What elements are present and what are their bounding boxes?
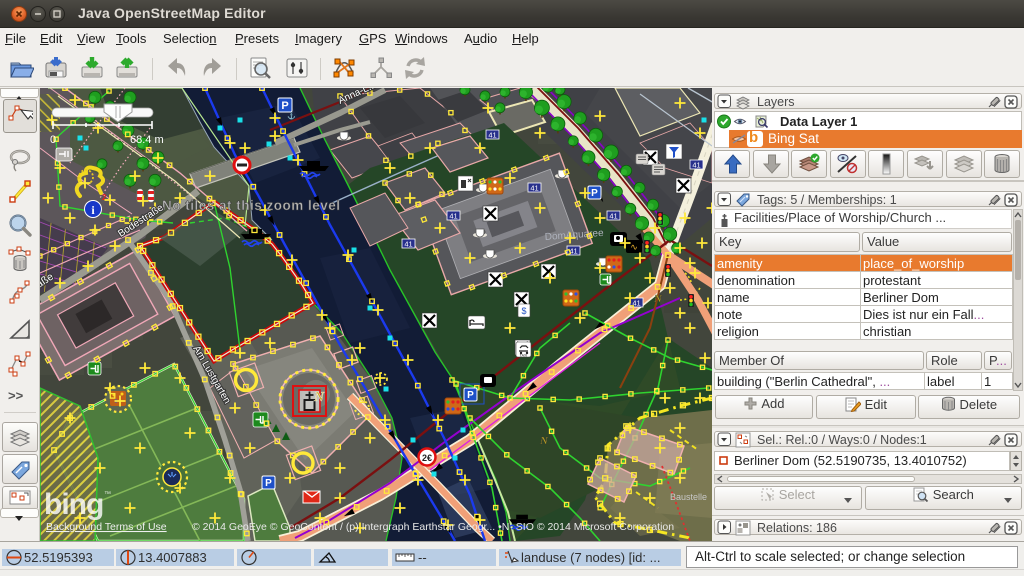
svg-text:41: 41 [488, 131, 496, 140]
svg-text:⚓: ⚓ [287, 111, 296, 120]
svg-text:P: P [281, 100, 288, 112]
svg-text:P: P [467, 390, 474, 401]
svg-text:41: 41 [692, 161, 700, 170]
svg-text:TAXI: TAXI [520, 354, 528, 358]
svg-text:No tiles at this zoom level: No tiles at this zoom level [162, 198, 341, 213]
svg-text:P: P [591, 188, 598, 199]
svg-text:Background Terms of Use: Background Terms of Use [46, 521, 167, 533]
svg-text:™: ™ [104, 491, 111, 498]
svg-text:bing: bing [44, 488, 103, 521]
svg-text:N: N [653, 293, 663, 305]
svg-text:41: 41 [530, 184, 538, 193]
svg-text:$: $ [521, 306, 526, 316]
svg-text:2€: 2€ [422, 453, 432, 463]
svg-text:41: 41 [449, 212, 457, 221]
svg-text:Baustelle: Baustelle [670, 492, 707, 502]
svg-text:41: 41 [404, 240, 412, 249]
svg-text:68.4 m: 68.4 m [130, 134, 164, 146]
svg-text:P: P [265, 478, 272, 489]
svg-text:© 2014 GeoEye © GeoContent / (: © 2014 GeoEye © GeoContent / (p) Intergr… [192, 521, 674, 533]
svg-text:0: 0 [50, 134, 56, 146]
svg-text:N: N [539, 435, 549, 447]
svg-text:N: N [313, 390, 325, 405]
svg-text:41: 41 [609, 212, 617, 221]
svg-text:∿: ∿ [630, 242, 638, 252]
